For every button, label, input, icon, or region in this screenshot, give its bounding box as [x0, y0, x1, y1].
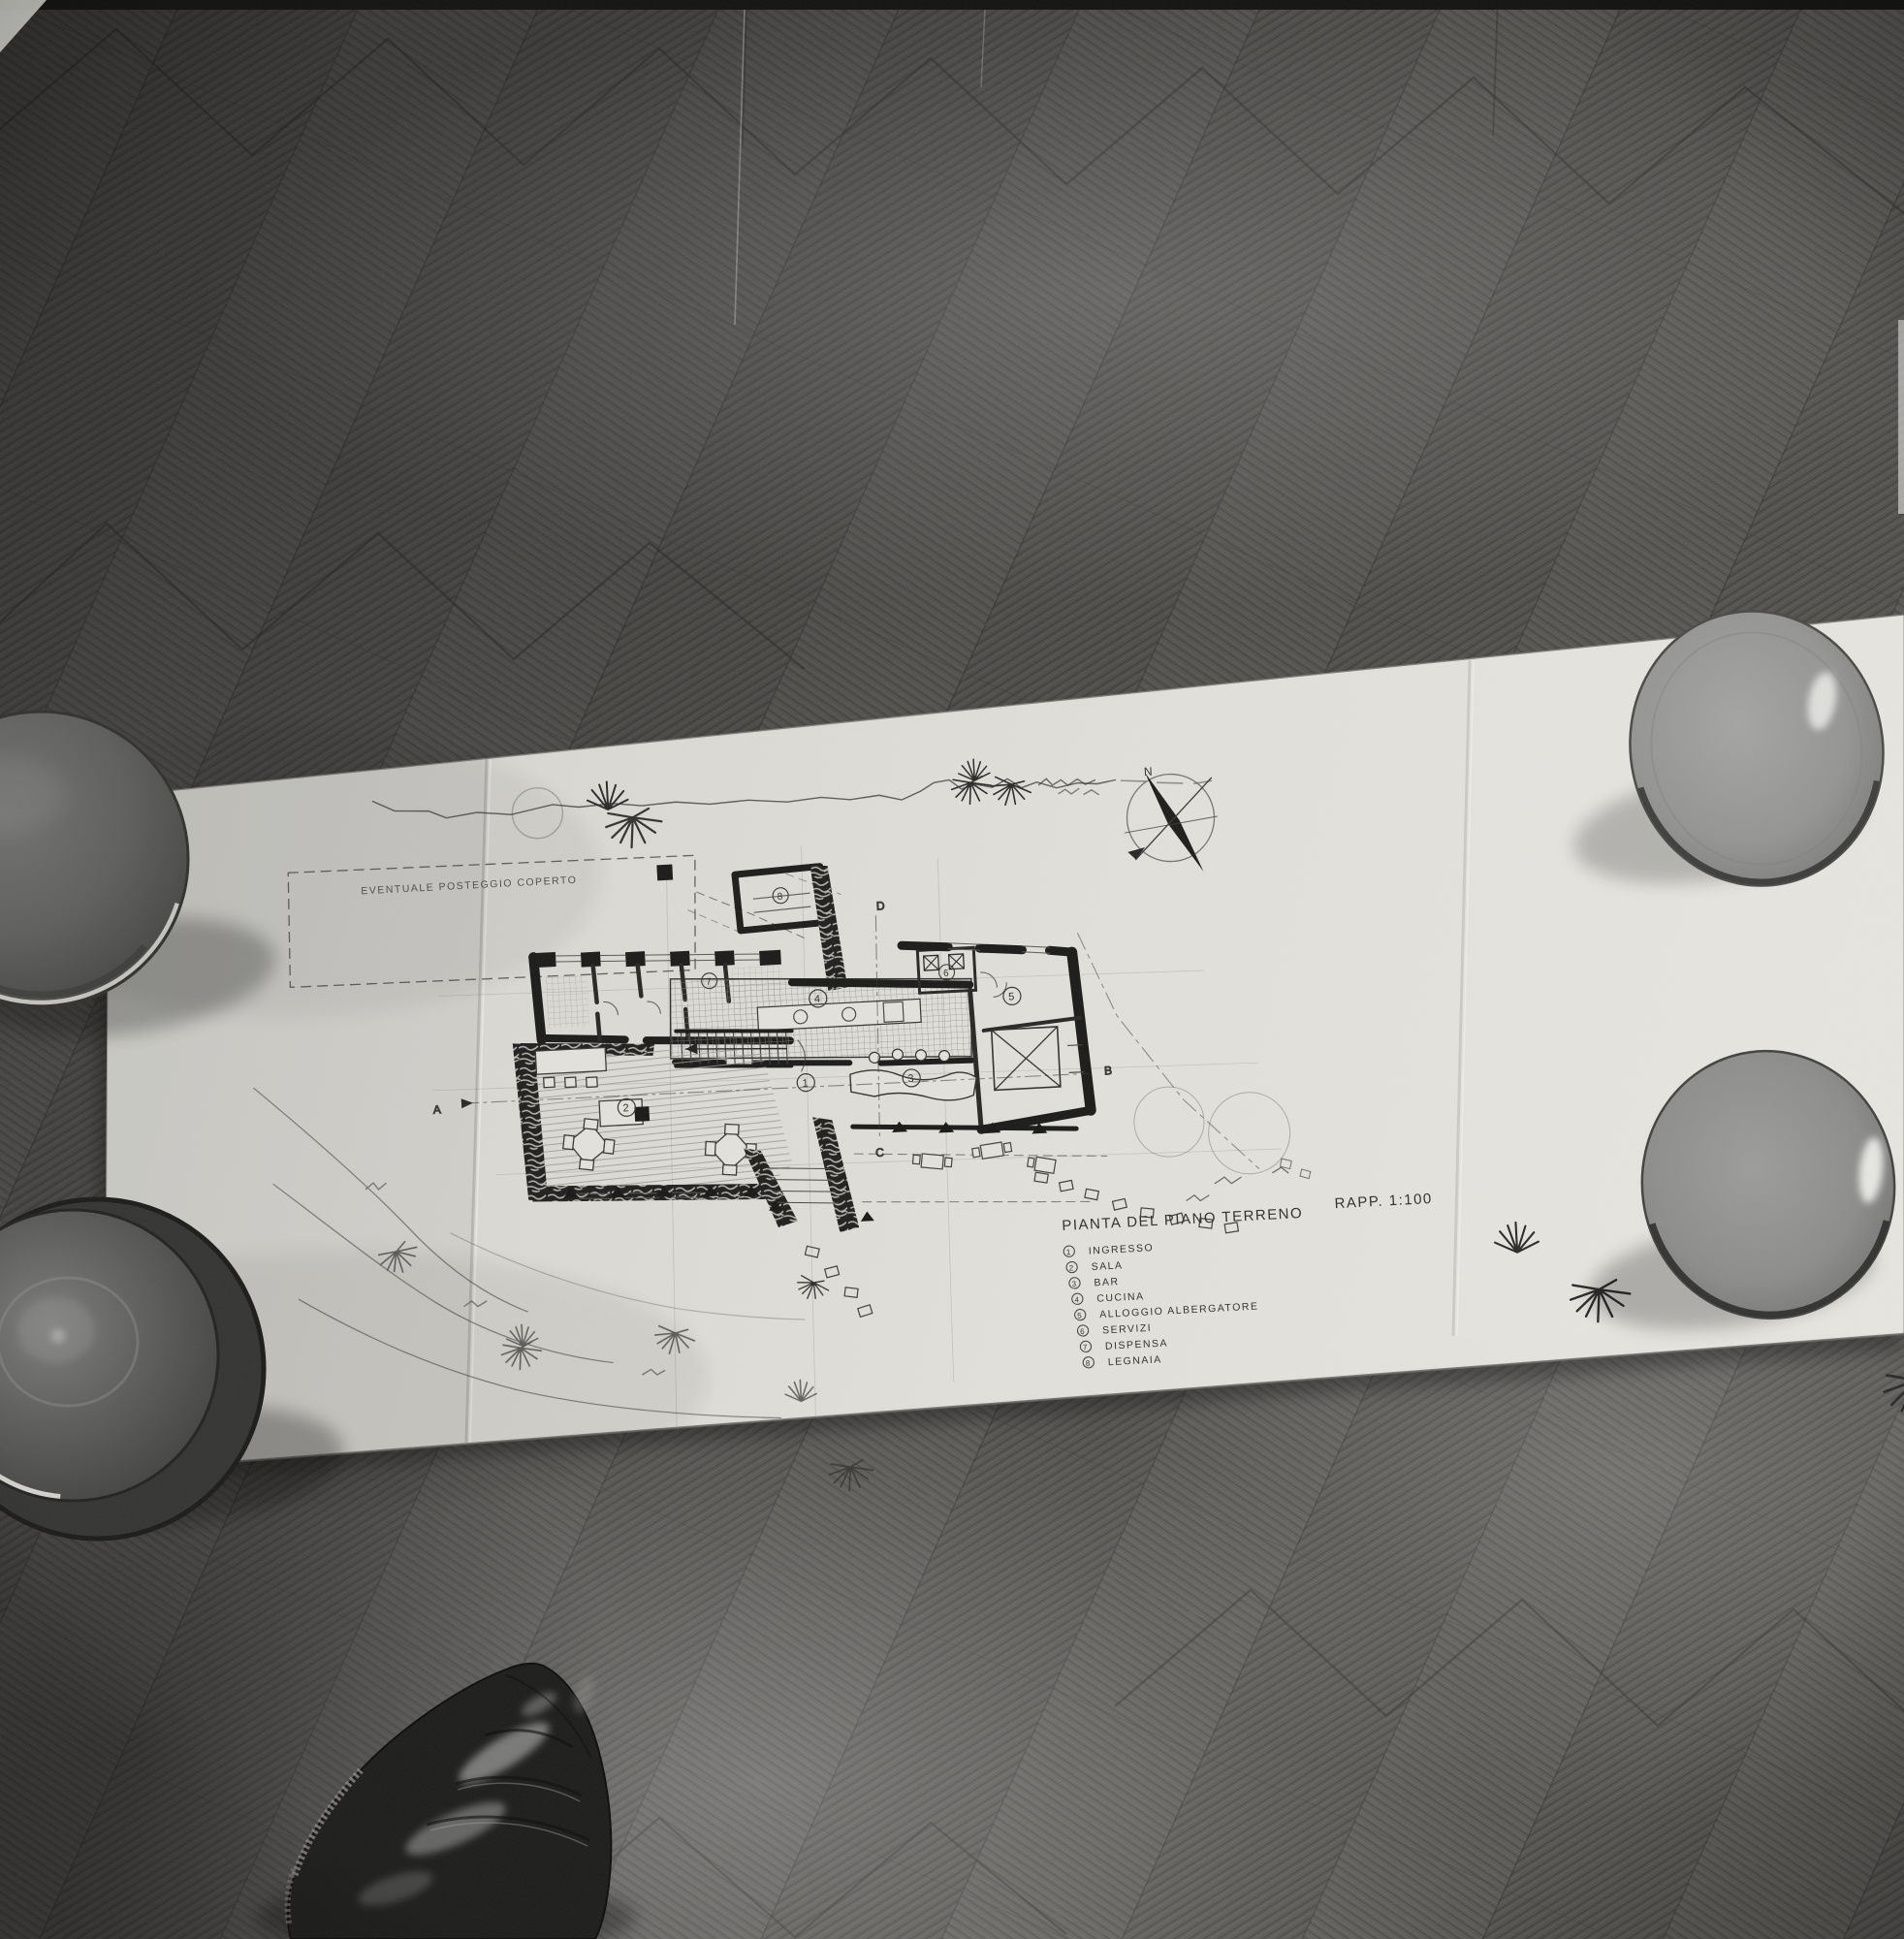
- vignette: [0, 0, 1904, 1939]
- photo-scene: N EVENTUALE POSTEGGIO COPERTO: [0, 0, 1904, 1939]
